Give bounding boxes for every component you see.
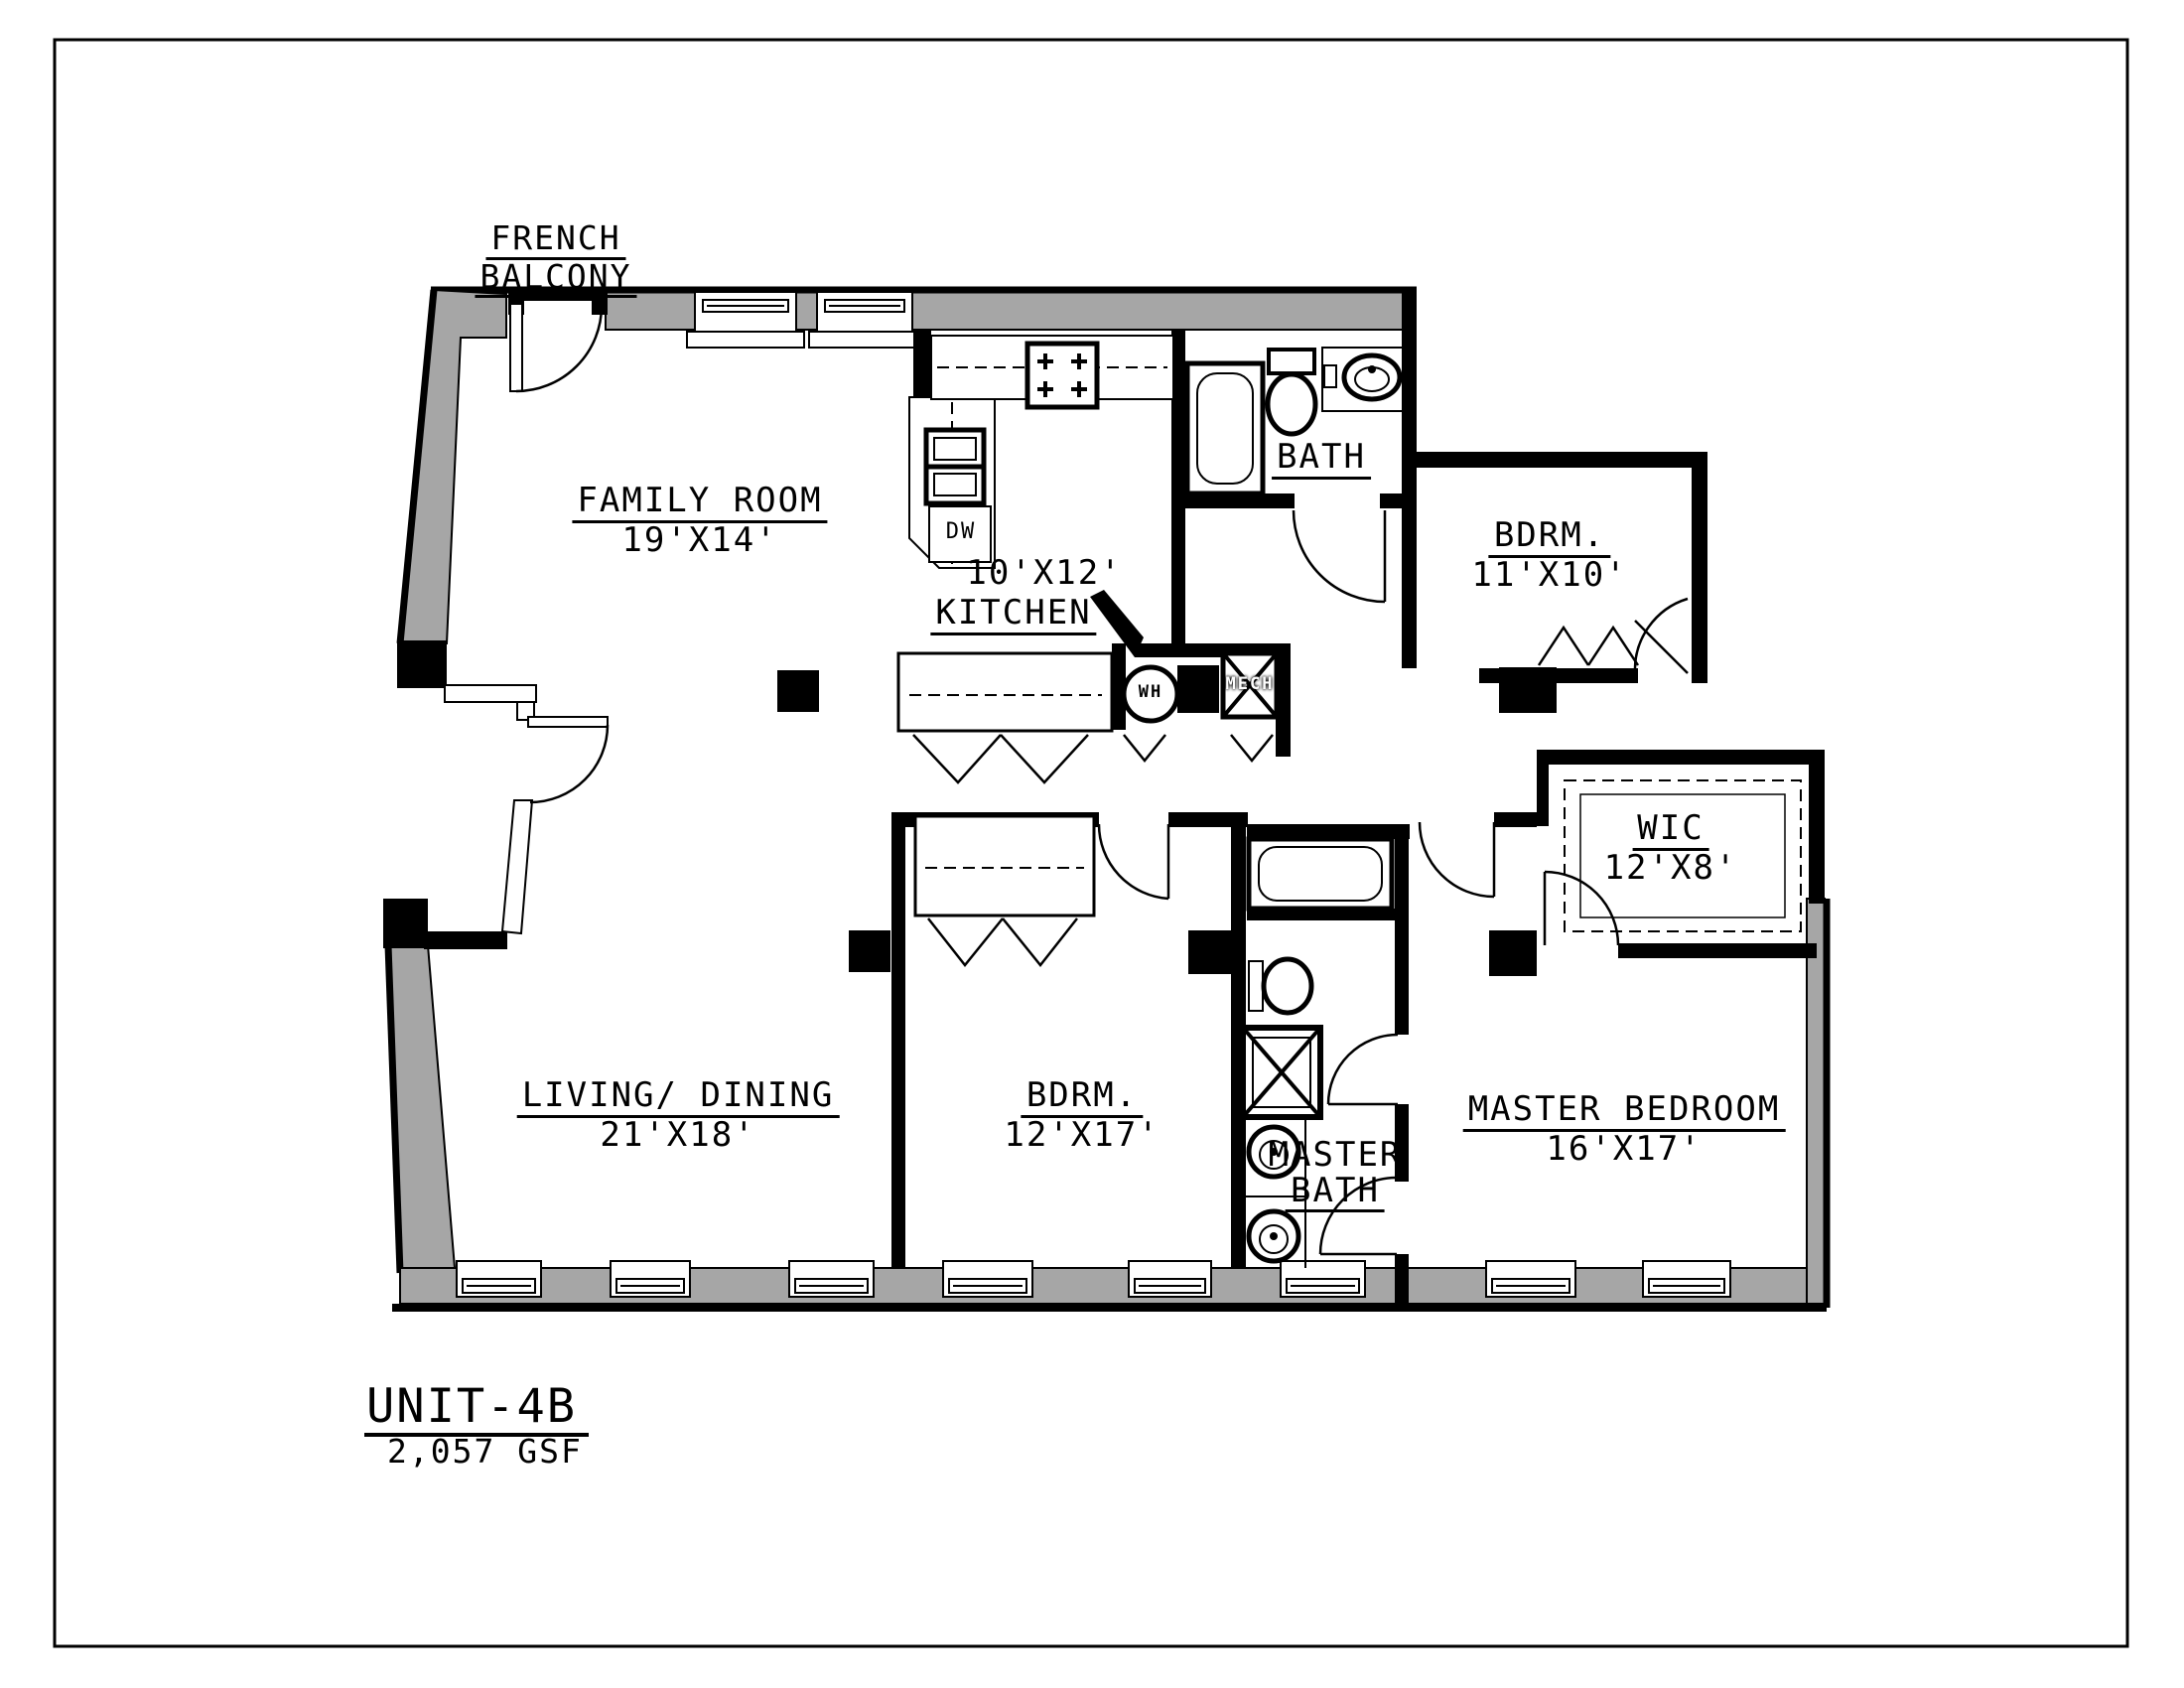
balcony-label: FRENCH BALCONY (475, 221, 636, 298)
bedroom-upper-label: BDRM. 11'X10' (1471, 518, 1627, 593)
bedroom-lower-features (915, 816, 1168, 965)
bifold-door (1539, 628, 1588, 665)
unit-title-text: UNIT-4B (364, 1382, 589, 1437)
bedroom-upper-west-wall (1402, 469, 1417, 668)
master-bedroom-name: MASTER BEDROOM (1463, 1092, 1786, 1132)
door-swing-arc (530, 725, 608, 802)
kitchen-name: KITCHEN (930, 596, 1096, 635)
bifold-door (928, 918, 1003, 965)
master-bath-entry-door (1328, 1035, 1398, 1104)
floor-plan-drawing (0, 0, 2184, 1688)
bifold-door (913, 735, 1001, 782)
door-leaf (510, 304, 522, 391)
bath-label: BATH (1272, 440, 1371, 480)
master-bath-name-line1: MASTER (1269, 1135, 1403, 1175)
bifold-door (1588, 628, 1638, 665)
master-toilet (1249, 959, 1311, 1013)
unit-area: 2,057 GSF (387, 1435, 583, 1470)
column-family-room (777, 670, 819, 712)
column-hall-lower (1489, 930, 1537, 976)
bath-sink (1322, 348, 1412, 411)
floor-plan-page: FRENCH BALCONY FAMILY ROOM 19'X14' 10'X1… (0, 0, 2184, 1688)
column-bedroom-lower (1188, 930, 1234, 974)
unit-title: UNIT-4B (364, 1382, 589, 1437)
toilet (1268, 350, 1315, 434)
wic-east-wall (1809, 765, 1825, 904)
bedroom-upper-north-wall (1402, 452, 1707, 468)
wall-column-west-upper (397, 640, 447, 688)
master-bath-name-line2: BATH (1286, 1174, 1385, 1213)
balcony-label-line1: FRENCH (485, 221, 625, 260)
dishwasher-label: DW (946, 520, 977, 543)
window-south-7 (1486, 1261, 1575, 1297)
bedroom-upper-name: BDRM. (1489, 518, 1610, 558)
bath-name: BATH (1272, 440, 1371, 480)
door-leaf (528, 717, 608, 727)
column-living (849, 930, 890, 972)
wic-south-wall (1618, 943, 1817, 958)
window-south-3 (789, 1261, 874, 1297)
window-south-4 (943, 1261, 1032, 1297)
bedroom-upper-dims: 11'X10' (1471, 555, 1627, 595)
wall-column-west-lower (383, 899, 428, 948)
bedroom-upper-east-wall (1692, 452, 1707, 683)
bedroom-lower-closet (915, 816, 1094, 965)
bifold-door (1001, 735, 1088, 782)
window-south-5 (1129, 1261, 1211, 1297)
bedroom-upper-door (1635, 599, 1688, 673)
window-south-2 (611, 1261, 690, 1297)
column-utility (1177, 665, 1219, 713)
mechanical-label: MECH (1226, 676, 1275, 694)
kitchen-dims: 10'X12' (966, 556, 1122, 592)
french-balcony-door (508, 288, 608, 391)
master-bedroom-dims: 16'X17' (1546, 1129, 1702, 1169)
window-south-1 (457, 1261, 541, 1297)
east-wall (1807, 899, 1825, 1304)
louver-door (1124, 735, 1165, 761)
master-tub (1249, 839, 1392, 909)
refrigerator (926, 430, 984, 503)
kitchen-label: KITCHEN (930, 596, 1096, 635)
bathtub (1187, 363, 1263, 493)
master-bath-label: MASTER BATH (1269, 1138, 1403, 1212)
family-room-name: FAMILY ROOM (572, 484, 827, 523)
corridor-south-wall-c (1494, 812, 1537, 827)
window-south-8 (1643, 1261, 1730, 1297)
coat-closet (898, 653, 1112, 782)
west-recess (424, 685, 608, 949)
master-sink-2 (1249, 1211, 1298, 1261)
wic-name: WIC (1632, 811, 1708, 851)
window-north-1 (687, 292, 804, 348)
bath-door (1294, 510, 1385, 602)
wic-west-wall (1537, 765, 1549, 826)
mechanical-closet (1223, 653, 1277, 761)
stove (1027, 344, 1097, 407)
louver-door (1231, 735, 1273, 761)
bedroom-lower-dims: 12'X17' (1004, 1115, 1160, 1155)
window-south-6 (1281, 1261, 1365, 1297)
bifold-door (1003, 918, 1077, 965)
wic-label: WIC 12'X8' (1604, 811, 1738, 886)
living-dining-label: LIVING/ DINING 21'X18' (517, 1078, 840, 1153)
bedroom-lower-label: BDRM. 12'X17' (1004, 1078, 1160, 1153)
utility-fixtures (898, 653, 1277, 782)
bedroom-lower-west-wall (891, 812, 905, 1268)
master-bath-east-wall-3 (1395, 1254, 1409, 1304)
master-bedroom-label: MASTER BEDROOM 16'X17' (1463, 1092, 1786, 1167)
family-room-dims: 19'X14' (621, 520, 777, 560)
balcony-label-line2: BALCONY (475, 260, 636, 299)
living-dining-dims: 21'X18' (600, 1115, 755, 1155)
column-hall-upper (1499, 667, 1557, 713)
family-room-label: FAMILY ROOM 19'X14' (572, 484, 827, 558)
water-heater-label: WH (1139, 684, 1162, 702)
master-shower (1243, 1028, 1320, 1117)
wic-dims: 12'X8' (1604, 848, 1738, 888)
window-north-2 (809, 292, 920, 348)
hall-master-door (1420, 822, 1494, 897)
wic-north-wall (1537, 750, 1825, 765)
master-bath-east-wall-1 (1395, 824, 1409, 1035)
door-swing-arc (516, 306, 602, 391)
bedroom-lower-door (1099, 824, 1168, 899)
living-dining-name: LIVING/ DINING (517, 1078, 840, 1118)
bedroom-lower-name: BDRM. (1022, 1078, 1143, 1118)
